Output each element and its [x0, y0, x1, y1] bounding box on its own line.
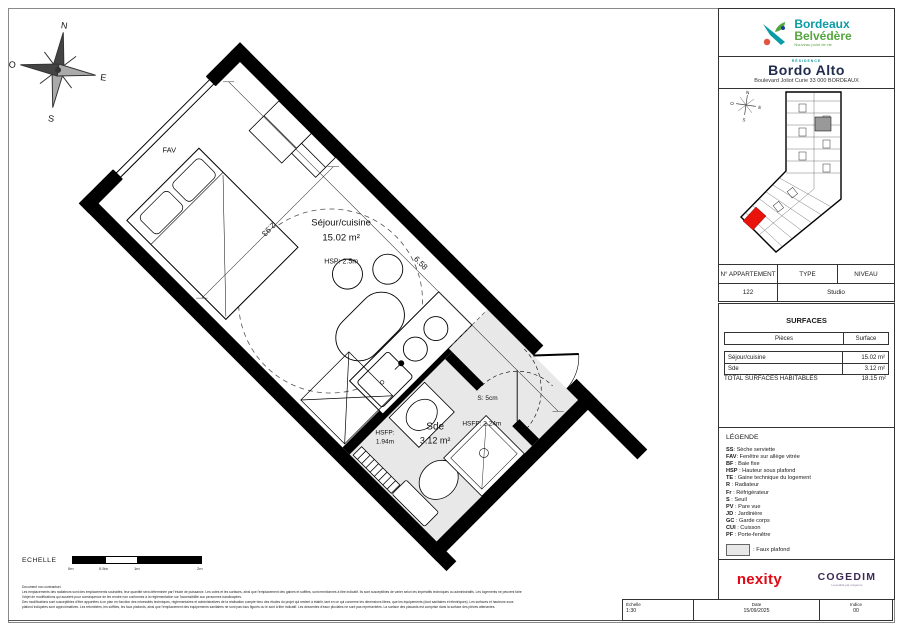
hsfp2-label: HSFP: 2.24m — [462, 420, 501, 427]
legend-item: Fr : Réfrigérateur — [726, 490, 894, 497]
legend-item: CUI : Cuisson — [726, 525, 894, 532]
legend-item: SS: Sèche serviette — [726, 447, 894, 454]
brand-line2: Belvédère — [794, 30, 851, 42]
compass-s: S — [48, 113, 55, 124]
wardrobe — [249, 101, 335, 187]
surfaces-title: SURFACES — [719, 316, 894, 325]
site-plan: N S O E — [718, 88, 895, 265]
svg-text:HSP: 2.5m: HSP: 2.5m — [324, 258, 358, 265]
compass-rose: N S E O — [1, 14, 113, 131]
legend-title: LÉGENDE — [726, 434, 894, 441]
site-plan-svg: N S O E — [719, 89, 894, 264]
apt-type: Studio — [778, 284, 895, 302]
legend-item: S : Seuil — [726, 497, 894, 504]
surfaces-col-surface: Surface — [844, 333, 888, 344]
apt-col-number: N° APPARTEMENT — [718, 264, 778, 284]
scale-bar-segment — [138, 556, 202, 564]
brand-header: Bordeaux Belvédère Nouveau point de vie — [718, 8, 895, 57]
table-row: Sde 3.12 m² — [725, 363, 888, 374]
floor-plan: N S E O — [0, 0, 718, 580]
svg-text:Séjour/cuisine: Séjour/cuisine — [311, 217, 371, 228]
bordeaux-belvedere-logo-icon — [761, 18, 789, 48]
footer-echelle: Échelle 1:30 — [622, 599, 694, 621]
surfaces-rows: Séjour/cuisine 15.02 m² Sde 3.12 m² — [724, 351, 889, 375]
building-footprint — [741, 92, 841, 252]
footer-indice: Indice 00 — [820, 599, 893, 621]
legend-item: BF : Baie fixe — [726, 461, 894, 468]
apartment-table: N° APPARTEMENT TYPE NIVEAU 122 Studio — [718, 264, 895, 304]
scale-tick: 2m — [197, 566, 203, 571]
disclaimer-line: plafond indiquées sont approximatives. L… — [22, 605, 618, 610]
legend-item: JD : Jardinière — [726, 511, 894, 518]
nexity-logo: nexity — [737, 571, 782, 588]
dark-unit — [815, 117, 831, 131]
apartment-plan: 6.58 2.93 Séjour/cuisine 15.02 m² HSP: 2… — [79, 29, 661, 580]
legend-item: PF : Porte-fenêtre — [726, 532, 894, 539]
svg-text:FAV: FAV — [162, 146, 176, 155]
legend-item: PV : Pare vue — [726, 504, 894, 511]
disclaimer: Document non contractuel. Les emplacemen… — [22, 585, 618, 610]
apt-number: 122 — [718, 284, 778, 302]
legend-item: FAV: Fenêtre sur allège vitrée — [726, 454, 894, 461]
legend-item: GC : Garde corps — [726, 518, 894, 525]
surfaces-total-row: TOTAL SURFACES HABITABLES 18.15 m² — [724, 375, 889, 382]
surfaces-header-row: Pièces Surface — [724, 332, 889, 345]
apt-col-type: TYPE — [778, 264, 838, 284]
scale-label: ECHELLE — [22, 557, 56, 564]
legend-item: TE : Gaine technique du logement — [726, 475, 894, 482]
svg-text:HSFP: 2.24m: HSFP: 2.24m — [462, 420, 501, 427]
scale-bar-segment — [72, 556, 105, 564]
surfaces-col-piece: Pièces — [725, 333, 844, 344]
surfaces-section: SURFACES Pièces Surface Séjour/cuisine 1… — [718, 303, 895, 428]
fav-label: FAV — [162, 146, 176, 155]
surfaces-total-value: 18.15 m² — [842, 375, 889, 382]
svg-text:Sde: Sde — [426, 422, 444, 433]
svg-text:O: O — [730, 101, 735, 107]
svg-text:6.58: 6.58 — [412, 254, 430, 272]
svg-text:E: E — [758, 105, 762, 110]
svg-text:S: 5cm: S: 5cm — [477, 395, 497, 402]
site-compass-icon: N S O E — [728, 89, 763, 124]
legend: LÉGENDE SS: Sèche serviette FAV: Fenêtre… — [718, 427, 895, 560]
title-block-footer: Échelle 1:30 Date 15/09/2025 Indice 00 — [622, 599, 893, 621]
bed — [127, 148, 298, 319]
compass-n: N — [60, 20, 68, 31]
legend-item: R : Radiateur — [726, 482, 894, 489]
svg-text:S: S — [742, 117, 746, 122]
scale-tick: 1m — [134, 566, 140, 571]
cogedim-logo: COGEDIM La qualité par exigence — [818, 572, 877, 587]
legend-item: HSP : Hauteur sous plafond — [726, 468, 894, 475]
scale-tick: 0.5m — [99, 566, 108, 571]
compass-e: E — [100, 72, 107, 83]
stool — [367, 248, 409, 290]
legend-faux-plafond: : Faux plafond — [726, 544, 894, 556]
surfaces-total-label: TOTAL SURFACES HABITABLES — [724, 375, 842, 382]
svg-text:3.12 m²: 3.12 m² — [420, 436, 451, 446]
developers: nexity COGEDIM La qualité par exigence — [718, 559, 895, 600]
table-row: Séjour/cuisine 15.02 m² — [725, 352, 888, 363]
svg-text:1.94m: 1.94m — [376, 439, 394, 446]
seuil-label: S: 5cm — [477, 395, 497, 402]
svg-text:N: N — [746, 90, 750, 95]
residence-name: Bordo Alto — [719, 63, 894, 77]
scale-tick: 0m — [68, 566, 74, 571]
svg-text:HSFP:: HSFP: — [375, 430, 394, 437]
apt-col-level: NIVEAU — [838, 264, 895, 284]
scale-bar-segment — [105, 556, 138, 564]
plan-svg: N S E O — [0, 0, 718, 580]
sejour-label: Séjour/cuisine 15.02 m² HSP: 2.5m — [311, 217, 371, 265]
faux-plafond-swatch — [726, 544, 750, 556]
residence-header: RÉSIDENCE Bordo Alto Boulevard Joliot Cu… — [718, 56, 895, 89]
footer-date: Date 15/09/2025 — [694, 599, 820, 621]
compass-o: O — [8, 59, 16, 70]
svg-text:15.02 m²: 15.02 m² — [322, 232, 360, 243]
residence-address: Boulevard Joliot Curie 33 000 BORDEAUX — [719, 78, 894, 84]
brand-tagline: Nouveau point de vie — [794, 43, 851, 47]
